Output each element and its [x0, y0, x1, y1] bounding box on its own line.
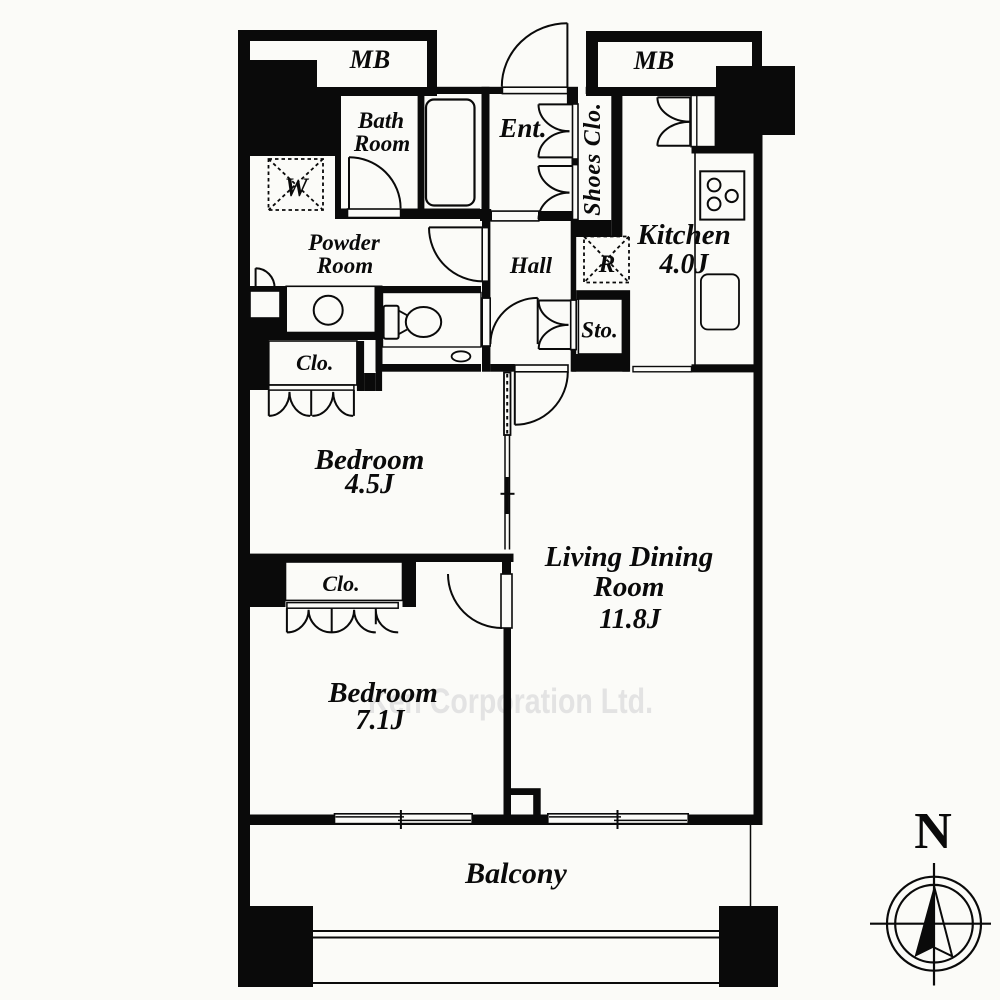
svg-text:Shoes Clo.: Shoes Clo. [580, 102, 606, 215]
svg-text:Ent.: Ent. [498, 113, 546, 143]
svg-text:N: N [914, 803, 952, 860]
svg-text:Clo.: Clo. [296, 350, 333, 375]
svg-text:Room: Room [593, 571, 665, 603]
svg-text:Room: Room [316, 253, 373, 278]
svg-text:11.8J: 11.8J [599, 604, 661, 635]
svg-text:Balcony: Balcony [464, 857, 567, 890]
svg-text:7.1J: 7.1J [356, 705, 406, 736]
svg-text:Sto.: Sto. [581, 318, 617, 343]
svg-text:Bath: Bath [357, 108, 404, 133]
svg-text:Hall: Hall [509, 253, 553, 278]
svg-text:Kitchen: Kitchen [636, 219, 730, 251]
svg-text:Room: Room [353, 131, 410, 156]
svg-text:4.0J: 4.0J [659, 249, 710, 280]
svg-text:Clo.: Clo. [322, 571, 359, 596]
svg-text:MB: MB [633, 46, 674, 75]
svg-text:R: R [598, 251, 616, 278]
svg-text:Living Dining: Living Dining [544, 541, 713, 573]
svg-text:4.5J: 4.5J [344, 469, 395, 500]
svg-text:W: W [284, 173, 309, 202]
svg-text:MB: MB [349, 45, 390, 74]
svg-text:Powder: Powder [307, 230, 381, 255]
